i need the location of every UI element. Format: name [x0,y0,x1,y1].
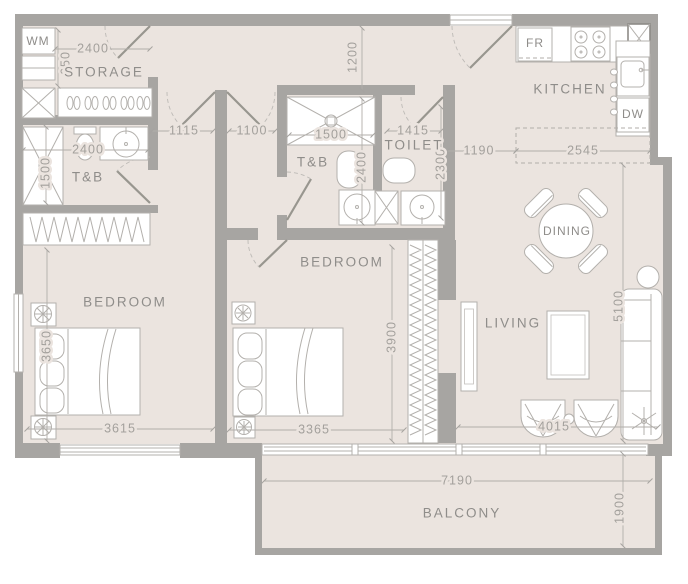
side-table-icon [637,266,659,288]
dim-bedroom1-width: 3615 [104,421,136,435]
room-label-wm: WM [26,34,49,48]
dim-tb2-depth: 2400 [354,151,368,183]
floor-plan: 2400 650 1200 1115 1100 1500 1415 2400 1… [0,0,688,584]
dim-shower2-width: 1500 [315,127,347,141]
tv-console-icon [461,302,477,391]
room-label-bedroom1: BEDROOM [83,295,167,310]
stove-icon [571,27,610,61]
room-label-dining: DINING [543,224,591,238]
balcony-sliding-door [262,444,648,455]
dim-toilet-width: 1415 [397,123,429,137]
coffee-table-icon [547,311,589,379]
dim-bedroom2-depth: 3900 [384,321,398,353]
room-label-storage: STORAGE [64,65,144,80]
dim-toilet-depth: 2300 [433,148,447,180]
room-label-bedroom2: BEDROOM [300,255,384,270]
washbasin-icon-tb2 [339,190,375,225]
room-label-dishwasher: DW [622,107,644,121]
window-bedroom1-bottom [60,445,180,455]
wardrobe-icon-bedroom1 [23,213,150,245]
nightstand-icon [31,303,56,326]
dim-door-left: 1115 [169,123,199,137]
nightstand-icon [31,416,56,439]
room-label-tb2: T&B [297,155,329,170]
room-label-kitchen: KITCHEN [533,82,606,97]
sofa-icon [621,289,662,440]
balcony-floor [262,452,655,549]
window-left-bedroom-side [14,294,23,372]
washbasin-icon-wc [401,191,445,225]
room-label-tb1: T&B [72,170,104,185]
washbasin-icon-tb1 [100,127,148,160]
wardrobe-icon-bedroom2 [408,240,438,443]
armchair-icon [574,400,618,437]
kitchen-sink-icon [617,57,649,96]
dim-bedroom2-width: 3365 [298,422,330,436]
entry-door-opening [450,15,512,25]
dim-counter-length: 2545 [567,143,599,157]
dim-door-right: 1100 [237,123,268,137]
room-label-balcony: BALCONY [423,506,502,521]
shaft-icon-middle [375,191,398,224]
dim-tb1-depth: 1500 [38,157,52,189]
dim-kitchen-pass: 1190 [464,143,495,157]
shaft-icon-left [22,88,55,118]
toilet-icon-wc [383,158,415,183]
double-bed-icon [233,328,343,416]
dim-tb1-width: 2400 [72,142,104,156]
dim-storage-width: 2400 [77,41,109,55]
dim-hall-width: 1200 [345,41,359,73]
room-label-fridge: FR [526,36,544,50]
shoe-rack-icon [58,88,152,117]
nightstand-icon [232,302,255,324]
dim-chairs-width: 4015 [538,419,570,433]
room-label-toilet: TOILET [384,138,443,153]
room-label-living: LIVING [485,316,541,331]
dim-balcony-width: 7190 [441,473,473,487]
nightstand-icon [234,417,255,438]
dim-living-depth: 5100 [611,290,625,322]
dim-bedroom1-depth: 3650 [39,330,53,362]
dim-balcony-depth: 1900 [612,492,626,524]
